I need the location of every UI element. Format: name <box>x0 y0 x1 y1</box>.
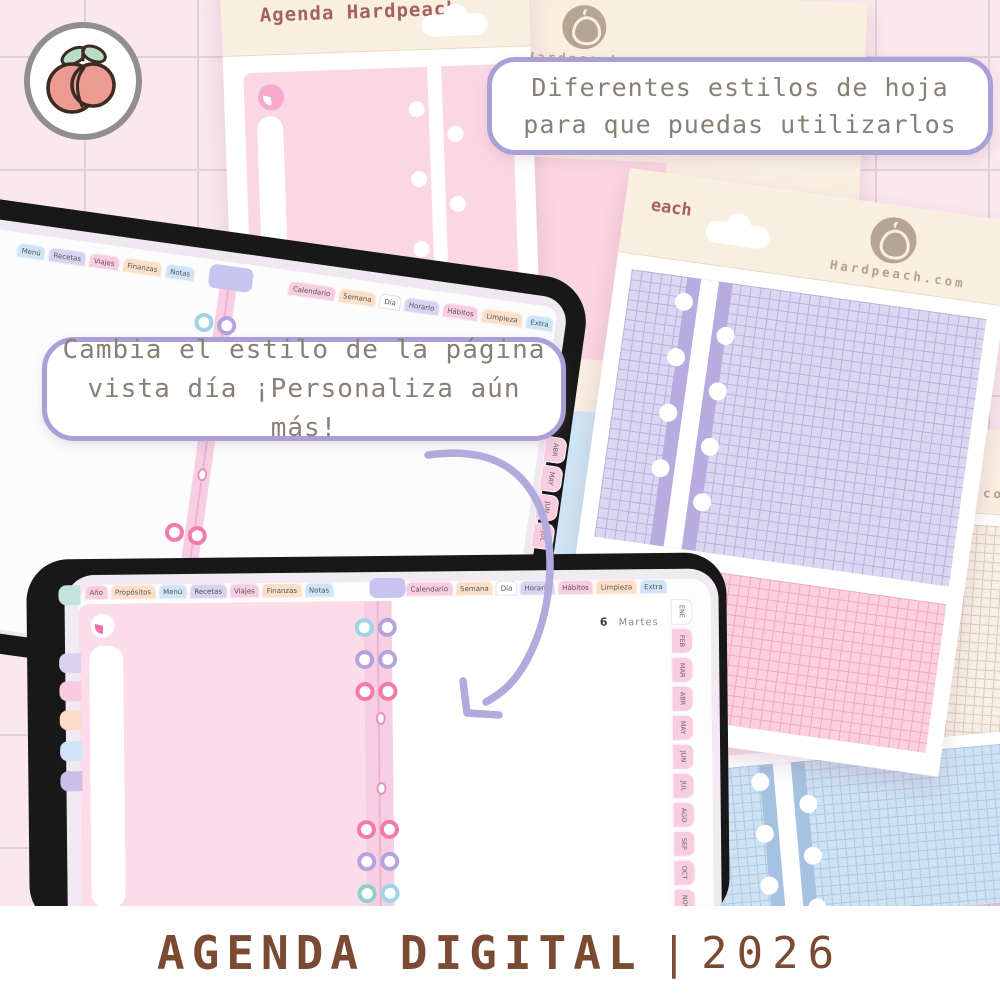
month-tab-column: ENEFEBMARABRMAYJUNJULAGOSEPOCTNOVDIC <box>671 599 697 928</box>
speech-bubble-styles: Diferentes estilos de hoja para que pued… <box>487 57 993 155</box>
month-tab[interactable]: ENE <box>671 599 693 625</box>
left-page[interactable] <box>79 601 367 927</box>
month-tab[interactable]: OCT <box>673 860 695 886</box>
planner-tab[interactable]: Horario <box>519 580 555 595</box>
right-page[interactable]: 6 Martes <box>392 598 670 924</box>
bubble-line: Diferentes estilos de hoja <box>492 69 988 107</box>
page-sidebar <box>89 646 126 908</box>
month-tab[interactable]: JUL <box>530 522 555 551</box>
planner-tab[interactable]: Menú <box>158 584 187 599</box>
binder-clip <box>358 884 400 903</box>
clock-icon <box>258 84 285 111</box>
bookmark-tab[interactable] <box>59 653 81 673</box>
promo-canvas: Hardpeach.com h.com each Hardpeach.com <box>0 0 1000 1000</box>
month-tab[interactable]: JUL <box>672 773 694 799</box>
planner-tab[interactable]: Hábitos <box>557 580 594 595</box>
footer-separator: | <box>661 928 688 979</box>
planner-tab[interactable]: Calendario <box>405 581 453 596</box>
planner-tab[interactable]: Día <box>378 293 402 311</box>
month-tab[interactable]: JUN <box>672 744 694 770</box>
spine-hole <box>376 782 386 795</box>
date-heading: 6 Martes <box>600 610 659 630</box>
side-bookmark-tabs <box>58 585 82 805</box>
peach-brand-icon <box>561 4 607 50</box>
planner-tab[interactable]: Extra <box>639 579 668 594</box>
binder-clip <box>355 682 397 701</box>
binder-clip <box>357 820 399 839</box>
bookmark-tab[interactable] <box>60 741 82 761</box>
tablet2-tabs-left: AñoPropósitosMenúRecetasViajesFinanzasNo… <box>84 582 334 600</box>
planner-app: AñoPropósitosMenúRecetasViajesFinanzasNo… <box>78 579 714 928</box>
binder-clip <box>355 618 397 637</box>
planner-tab[interactable]: Propósitos <box>110 584 156 599</box>
month-tab[interactable]: SEP <box>673 831 695 857</box>
binder-clip <box>357 852 399 871</box>
footer-year: 2026 <box>701 928 843 979</box>
spine-hole <box>376 712 386 725</box>
month-tab[interactable]: MAY <box>538 464 563 493</box>
planner-tab[interactable]: Año <box>84 585 108 600</box>
binder-clip <box>355 650 397 669</box>
clock-icon <box>91 614 115 638</box>
date-number: 6 <box>600 616 608 629</box>
month-tab[interactable]: ABR <box>671 686 693 712</box>
bookmark-tab[interactable] <box>59 681 81 701</box>
date-weekday: Martes <box>619 617 659 628</box>
tablet-mockup-bottom: AñoPropósitosMenúRecetasViajesFinanzasNo… <box>26 552 730 927</box>
bubble-line: Cambia el estilo de la página <box>47 331 561 370</box>
bubble-line: vista día ¡Personaliza aún más! <box>47 370 561 448</box>
planner-tab[interactable]: Finanzas <box>262 583 302 598</box>
peach-logo <box>22 20 144 142</box>
planner-tab[interactable]: Recetas <box>189 584 227 599</box>
month-tab[interactable]: JUN <box>534 493 559 522</box>
footer-title: AGENDA DIGITAL <box>157 926 643 980</box>
planner-tab[interactable]: Día <box>496 581 518 596</box>
planner-tab[interactable]: Semana <box>455 581 494 596</box>
tablet2-tabs-right: CalendarioSemanaDíaHorarioHábitosLimpiez… <box>405 579 667 597</box>
month-tab[interactable]: AGO <box>673 802 695 828</box>
footer-title-bar: AGENDA DIGITAL | 2026 <box>0 906 1000 1000</box>
speech-bubble-day: Cambia el estilo de la página vista día … <box>42 337 566 441</box>
planner-tab[interactable]: Limpieza <box>596 579 637 594</box>
bookmark-tab[interactable] <box>60 771 82 791</box>
month-tab[interactable]: FEB <box>671 628 693 654</box>
binding-widget <box>369 578 405 598</box>
month-tab[interactable]: MAY <box>672 715 694 741</box>
blue-grid-paper <box>703 743 1000 928</box>
planner-tab[interactable]: Notas <box>304 582 334 597</box>
planner-tab[interactable]: Viajes <box>229 583 260 598</box>
bookmark-tab[interactable] <box>58 585 80 605</box>
bookmark-tab[interactable] <box>60 710 82 730</box>
bubble-line: para que puedas utilizarlos <box>492 106 988 144</box>
month-tab[interactable]: MAR <box>671 657 693 683</box>
